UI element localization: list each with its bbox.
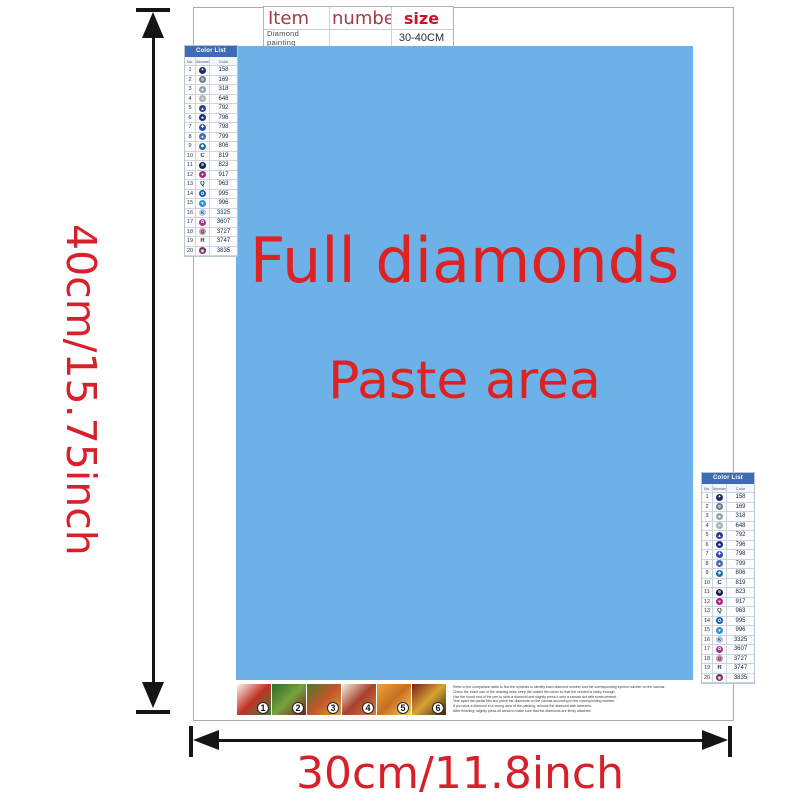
- color-row-code: 917: [210, 171, 237, 180]
- color-row-code: 963: [727, 607, 754, 616]
- color-row-number: 12: [185, 171, 196, 180]
- color-list-column-label: Color: [210, 57, 237, 65]
- color-row-code: 3607: [210, 218, 237, 227]
- color-row-code: 917: [727, 598, 754, 607]
- arrow-up-icon: [142, 12, 164, 38]
- color-row-code: 3325: [727, 636, 754, 645]
- color-list-column-label: Color: [727, 484, 754, 492]
- color-symbol-cell: ♠: [196, 133, 210, 142]
- color-row-number: 17: [185, 218, 196, 227]
- step-number-badge: 4: [362, 702, 374, 714]
- color-row: 1✦158: [702, 493, 754, 503]
- step-thumbnail: 6: [412, 684, 446, 715]
- symbol-letter: C: [200, 153, 204, 159]
- color-row-code: 3607: [727, 645, 754, 654]
- color-symbol-cell: ▲: [196, 104, 210, 113]
- color-row-code: 995: [727, 617, 754, 626]
- color-row: 2Φ169: [185, 76, 237, 86]
- symbol-circle-icon: Φ: [716, 503, 723, 510]
- paste-area: Full diamonds Paste area: [236, 46, 693, 680]
- color-row-code: 806: [727, 569, 754, 578]
- color-row-code: 806: [210, 142, 237, 151]
- color-symbol-cell: ✦: [196, 66, 210, 75]
- color-list-column-label: No.: [702, 484, 713, 492]
- color-row-number: 16: [185, 209, 196, 218]
- symbol-circle-icon: ◉: [199, 247, 206, 254]
- color-symbol-cell: ✚: [713, 550, 727, 559]
- symbol-circle-icon: Q: [199, 228, 206, 235]
- color-row-number: 3: [185, 85, 196, 94]
- color-row-code: 796: [210, 114, 237, 123]
- color-row-code: 963: [210, 180, 237, 189]
- color-symbol-cell: R: [196, 237, 210, 246]
- color-row-code: 169: [210, 76, 237, 85]
- symbol-circle-icon: ▼: [199, 200, 206, 207]
- symbol-circle-icon: Φ: [199, 76, 206, 83]
- color-row-number: 19: [702, 664, 713, 673]
- item-name-cell: Diamond painting: [264, 30, 330, 46]
- color-row-number: 11: [702, 588, 713, 597]
- color-row: 14✪995: [702, 617, 754, 627]
- color-row-number: 8: [185, 133, 196, 142]
- color-symbol-cell: ✿: [196, 218, 210, 227]
- color-row: 13Q963: [702, 607, 754, 617]
- vertical-arrow-bottom-cap: [136, 710, 170, 714]
- arrow-right-icon: [702, 730, 728, 750]
- color-row-number: 16: [702, 636, 713, 645]
- color-row-number: 8: [702, 560, 713, 569]
- color-row-number: 13: [185, 180, 196, 189]
- color-row-code: 169: [727, 503, 754, 512]
- color-row: 19R3747: [185, 237, 237, 247]
- color-row-code: 799: [727, 560, 754, 569]
- symbol-circle-icon: ♥: [716, 598, 723, 605]
- step-number-badge: 6: [432, 702, 444, 714]
- color-row-code: 3727: [727, 655, 754, 664]
- color-row: 15▼996: [702, 626, 754, 636]
- color-symbol-cell: Φ: [196, 76, 210, 85]
- color-row-number: 2: [702, 503, 713, 512]
- symbol-circle-icon: ✦: [199, 67, 206, 74]
- color-row-code: 995: [210, 190, 237, 199]
- color-symbol-cell: Q: [196, 180, 210, 189]
- step-number-badge: 5: [397, 702, 409, 714]
- color-row-code: 819: [727, 579, 754, 588]
- paste-area-subtitle: Paste area: [236, 351, 693, 411]
- color-row-code: 996: [210, 199, 237, 208]
- color-row-number: 7: [702, 550, 713, 559]
- item-size-table-row: Diamond painting 30-40CM: [264, 30, 453, 46]
- step-number-badge: 1: [257, 702, 269, 714]
- step-thumbnail: 2: [272, 684, 306, 715]
- color-row-number: 15: [185, 199, 196, 208]
- color-row-code: 798: [727, 550, 754, 559]
- symbol-circle-icon: Q: [716, 655, 723, 662]
- vertical-arrow-line: [152, 36, 155, 684]
- product-image: Item number size Diamond painting 30-40C…: [0, 0, 800, 800]
- symbol-circle-icon: ✳: [199, 95, 206, 102]
- color-symbol-cell: ▼: [196, 199, 210, 208]
- color-row: 3♣318: [702, 512, 754, 522]
- color-row: 1✦158: [185, 66, 237, 76]
- color-row: 20◉3835: [185, 247, 237, 257]
- symbol-circle-icon: ▼: [716, 627, 723, 634]
- color-symbol-cell: K: [196, 209, 210, 218]
- color-symbol-cell: ★: [196, 114, 210, 123]
- symbol-circle-icon: ✚: [199, 124, 206, 131]
- color-row-number: 10: [185, 152, 196, 161]
- color-row-number: 7: [185, 123, 196, 132]
- color-row-code: 798: [210, 123, 237, 132]
- symbol-circle-icon: K: [716, 636, 723, 643]
- color-symbol-cell: C: [196, 152, 210, 161]
- item-number-cell: [330, 30, 392, 46]
- color-symbol-cell: Φ: [713, 503, 727, 512]
- color-row-code: 158: [727, 493, 754, 502]
- color-row-code: 823: [727, 588, 754, 597]
- color-list-title: Color List: [702, 473, 754, 484]
- symbol-circle-icon: ◆: [716, 570, 723, 577]
- symbol-circle-icon: ♣: [716, 513, 723, 520]
- symbol-circle-icon: ⊕: [199, 162, 206, 169]
- symbol-circle-icon: ✿: [716, 646, 723, 653]
- symbol-circle-icon: ▲: [716, 532, 723, 539]
- symbol-letter: Q: [717, 608, 722, 614]
- color-row: 10C819: [702, 579, 754, 589]
- color-row-number: 18: [702, 655, 713, 664]
- color-row: 17✿3607: [185, 218, 237, 228]
- color-row-code: 823: [210, 161, 237, 170]
- color-row: 19R3747: [702, 664, 754, 674]
- color-symbol-cell: ⊕: [713, 588, 727, 597]
- color-row: 16K3325: [185, 209, 237, 219]
- color-row-number: 1: [702, 493, 713, 502]
- color-row: 4✳648: [185, 95, 237, 105]
- symbol-circle-icon: ✚: [716, 551, 723, 558]
- step-thumbnail: 1: [237, 684, 271, 715]
- color-row-number: 3: [702, 512, 713, 521]
- color-list-column-label: Diamond: [196, 57, 210, 65]
- color-row-code: 3835: [727, 674, 754, 683]
- symbol-circle-icon: ♠: [199, 133, 206, 140]
- color-row-number: 13: [702, 607, 713, 616]
- color-row: 8♠799: [702, 560, 754, 570]
- color-row-code: 3747: [210, 237, 237, 246]
- color-row-number: 5: [185, 104, 196, 113]
- color-row-code: 318: [727, 512, 754, 521]
- color-symbol-cell: ★: [713, 541, 727, 550]
- color-symbol-cell: ✳: [196, 95, 210, 104]
- color-row-code: 648: [210, 95, 237, 104]
- color-row: 18Q3727: [185, 228, 237, 238]
- symbol-circle-icon: ♥: [199, 171, 206, 178]
- color-list-title: Color List: [185, 46, 237, 57]
- symbol-circle-icon: ▲: [199, 105, 206, 112]
- color-list-column-label: Diamond: [713, 484, 727, 492]
- color-row: 8♠799: [185, 133, 237, 143]
- symbol-letter: R: [200, 238, 204, 244]
- color-row: 12♥917: [702, 598, 754, 608]
- step-thumbnail: 4: [342, 684, 376, 715]
- color-symbol-cell: R: [713, 664, 727, 673]
- color-symbol-cell: ♠: [713, 560, 727, 569]
- symbol-circle-icon: ♣: [199, 86, 206, 93]
- color-list: Color ListNo.DiamondColor1✦1582Φ1693♣318…: [184, 45, 238, 257]
- color-symbol-cell: ◉: [196, 247, 210, 256]
- color-symbol-cell: Q: [713, 607, 727, 616]
- step-number-badge: 3: [327, 702, 339, 714]
- color-symbol-cell: K: [713, 636, 727, 645]
- color-list: Color ListNo.DiamondColor1✦1582Φ1693♣318…: [701, 472, 755, 684]
- color-list-column-label: No.: [185, 57, 196, 65]
- color-row-code: 799: [210, 133, 237, 142]
- color-symbol-cell: ✳: [713, 522, 727, 531]
- color-row-number: 19: [185, 237, 196, 246]
- color-row-number: 17: [702, 645, 713, 654]
- symbol-circle-icon: ⊕: [716, 589, 723, 596]
- color-row-code: 3747: [727, 664, 754, 673]
- paste-area-title: Full diamonds: [236, 224, 693, 297]
- color-list-columns: No.DiamondColor: [702, 484, 754, 493]
- item-header: Item: [264, 7, 330, 29]
- symbol-circle-icon: ✪: [716, 617, 723, 624]
- color-row: 11⊕823: [702, 588, 754, 598]
- color-row-number: 2: [185, 76, 196, 85]
- color-row-code: 3325: [210, 209, 237, 218]
- color-symbol-cell: ▼: [713, 626, 727, 635]
- symbol-circle-icon: ★: [716, 541, 723, 548]
- color-row-number: 4: [702, 522, 713, 531]
- color-symbol-cell: ▲: [713, 531, 727, 540]
- color-row-number: 9: [702, 569, 713, 578]
- color-row-code: 318: [210, 85, 237, 94]
- color-row-number: 20: [702, 674, 713, 683]
- number-header: number: [330, 7, 392, 29]
- symbol-circle-icon: ★: [199, 114, 206, 121]
- horizontal-arrow-line: [214, 739, 708, 742]
- color-row: 16K3325: [702, 636, 754, 646]
- color-row: 10C819: [185, 152, 237, 162]
- instruction-line: After finishing, slightly press all area…: [453, 709, 703, 714]
- color-symbol-cell: ♥: [196, 171, 210, 180]
- color-row: 2Φ169: [702, 503, 754, 513]
- color-row-number: 18: [185, 228, 196, 237]
- symbol-circle-icon: ✳: [716, 522, 723, 529]
- color-symbol-cell: ◆: [713, 569, 727, 578]
- color-symbol-cell: ♥: [713, 598, 727, 607]
- item-size-table: Item number size Diamond painting 30-40C…: [263, 6, 454, 47]
- item-size-cell: 30-40CM: [392, 30, 451, 46]
- color-symbol-cell: ✦: [713, 493, 727, 502]
- color-symbol-cell: ♣: [713, 512, 727, 521]
- color-row-number: 12: [702, 598, 713, 607]
- symbol-circle-icon: K: [199, 209, 206, 216]
- color-symbol-cell: C: [713, 579, 727, 588]
- color-row-number: 6: [702, 541, 713, 550]
- color-row-code: 792: [210, 104, 237, 113]
- color-row-code: 3727: [210, 228, 237, 237]
- color-row-code: 158: [210, 66, 237, 75]
- color-row-number: 5: [702, 531, 713, 540]
- color-symbol-cell: ♣: [196, 85, 210, 94]
- step-strip: 123456: [237, 684, 447, 715]
- color-symbol-cell: ◆: [196, 142, 210, 151]
- color-symbol-cell: Q: [713, 655, 727, 664]
- color-row-number: 4: [185, 95, 196, 104]
- color-row: 9◆806: [185, 142, 237, 152]
- symbol-circle-icon: ✿: [199, 219, 206, 226]
- symbol-letter: Q: [200, 181, 205, 187]
- symbol-circle-icon: ✪: [199, 190, 206, 197]
- color-symbol-cell: ◉: [713, 674, 727, 683]
- color-row-number: 14: [702, 617, 713, 626]
- color-row-number: 20: [185, 247, 196, 256]
- color-row-number: 1: [185, 66, 196, 75]
- color-row-code: 3835: [210, 247, 237, 256]
- color-row-number: 14: [185, 190, 196, 199]
- color-symbol-cell: ✪: [196, 190, 210, 199]
- color-symbol-cell: ✪: [713, 617, 727, 626]
- color-symbol-cell: ⊕: [196, 161, 210, 170]
- symbol-letter: R: [717, 665, 721, 671]
- color-symbol-cell: ✚: [196, 123, 210, 132]
- color-row: 14✪995: [185, 190, 237, 200]
- width-dimension-label: 30cm/11.8inch: [260, 748, 660, 799]
- symbol-circle-icon: ◉: [716, 674, 723, 681]
- instructions: Refer to the comparison table to find th…: [453, 685, 703, 716]
- color-symbol-cell: Q: [196, 228, 210, 237]
- color-row-code: 792: [727, 531, 754, 540]
- color-row-number: 9: [185, 142, 196, 151]
- symbol-letter: C: [717, 580, 721, 586]
- color-list-columns: No.DiamondColor: [185, 57, 237, 66]
- color-row: 5▲792: [702, 531, 754, 541]
- color-row: 18Q3727: [702, 655, 754, 665]
- color-row-code: 819: [210, 152, 237, 161]
- step-number-badge: 2: [292, 702, 304, 714]
- color-row: 3♣318: [185, 85, 237, 95]
- size-header: size: [392, 7, 451, 29]
- color-row-code: 796: [727, 541, 754, 550]
- symbol-circle-icon: ◆: [199, 143, 206, 150]
- color-row-code: 648: [727, 522, 754, 531]
- color-row-number: 6: [185, 114, 196, 123]
- color-row: 15▼996: [185, 199, 237, 209]
- color-row: 12♥917: [185, 171, 237, 181]
- color-row-number: 11: [185, 161, 196, 170]
- color-row-number: 10: [702, 579, 713, 588]
- color-row: 5▲792: [185, 104, 237, 114]
- item-size-table-header: Item number size: [264, 7, 453, 30]
- color-row-code: 996: [727, 626, 754, 635]
- symbol-circle-icon: ✦: [716, 494, 723, 501]
- color-row: 17✿3607: [702, 645, 754, 655]
- arrow-down-icon: [142, 682, 164, 708]
- color-row-number: 15: [702, 626, 713, 635]
- color-row: 9◆806: [702, 569, 754, 579]
- step-thumbnail: 3: [307, 684, 341, 715]
- color-row: 13Q963: [185, 180, 237, 190]
- color-symbol-cell: ✿: [713, 645, 727, 654]
- color-row: 6★796: [702, 541, 754, 551]
- color-row: 7✚798: [185, 123, 237, 133]
- height-dimension-label: 40cm/15.75inch: [55, 210, 107, 570]
- color-row: 4✳648: [702, 522, 754, 532]
- horizontal-arrow-right-cap: [728, 726, 732, 757]
- color-row: 6★796: [185, 114, 237, 124]
- color-row: 20◉3835: [702, 674, 754, 684]
- symbol-circle-icon: ♠: [716, 560, 723, 567]
- color-row: 7✚798: [702, 550, 754, 560]
- step-thumbnail: 5: [377, 684, 411, 715]
- color-row: 11⊕823: [185, 161, 237, 171]
